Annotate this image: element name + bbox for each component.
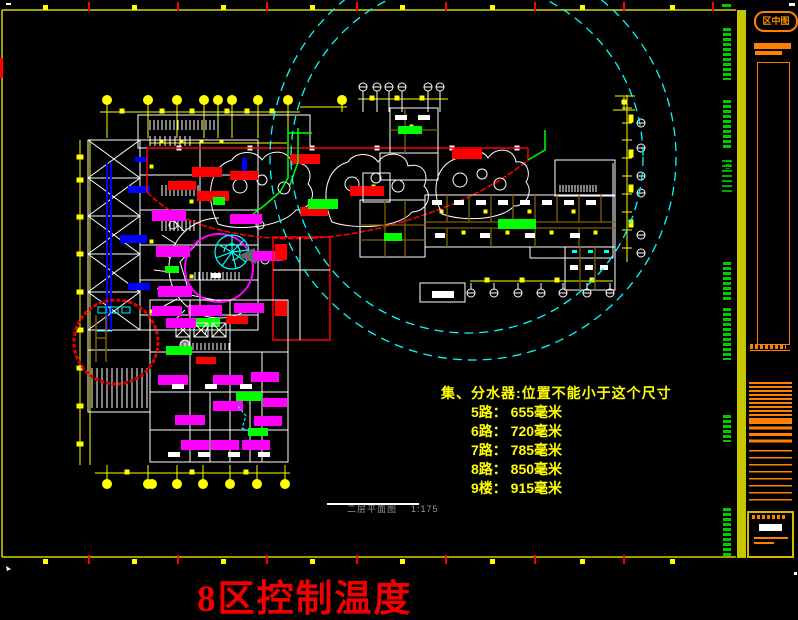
annotation-title: 集、分水器:位置不能小于这个尺寸 <box>441 383 672 403</box>
annotation-row: 5路： 655毫米 <box>471 403 672 422</box>
title-block-rows <box>749 450 792 506</box>
plan-caption: 二层平面图1:175 <box>333 492 439 525</box>
company-logo: 区中图 <box>754 11 798 32</box>
annotation-row: 8路： 850毫米 <box>471 460 672 479</box>
panel-green-dash <box>722 4 731 7</box>
spiral-stair <box>215 235 249 269</box>
red-shaft <box>273 237 330 340</box>
plan-caption-scale: 1:175 <box>411 504 439 514</box>
green-bar-hall <box>213 197 225 205</box>
manifold-annotation: 集、分水器:位置不能小于这个尺寸 5路： 655毫米 6路： 720毫米 7路：… <box>441 383 672 498</box>
stamp-rule <box>754 537 788 539</box>
sheet-binding-band <box>737 10 746 558</box>
micro-text-block <box>723 262 731 300</box>
title-block-micro-text <box>750 344 786 349</box>
cursor-icon <box>6 566 11 571</box>
plan-caption-underline <box>327 503 419 505</box>
revision-circle-red <box>74 300 158 384</box>
title-block-bar <box>755 51 782 55</box>
top-strip-block <box>138 115 519 150</box>
green-bar-hall-2 <box>308 199 338 209</box>
title-block-stamp <box>747 511 794 558</box>
panel-white-dot <box>794 572 797 575</box>
micro-text-block <box>723 28 731 80</box>
micro-text-tel: TEL <box>722 160 732 194</box>
building-left-block <box>88 140 258 412</box>
stamp-micro-text <box>752 515 786 519</box>
floor-plan-canvas[interactable] <box>0 0 798 620</box>
title-block-bars <box>749 420 792 446</box>
annotation-row: 7路： 785毫米 <box>471 441 672 460</box>
annotation-row: 9楼： 915毫米 <box>471 479 672 498</box>
stamp-rule <box>754 542 774 544</box>
zone-control-label: 8区控制温度 <box>197 568 413 620</box>
title-block-rule <box>750 350 790 351</box>
micro-text-block <box>723 308 731 360</box>
micro-text-block <box>723 415 731 442</box>
annotation-row: 6路： 720毫米 <box>471 422 672 441</box>
plan-caption-name: 二层平面图 <box>347 504 397 514</box>
right-wing <box>360 108 615 302</box>
panel-white-dash <box>789 3 795 6</box>
title-block-bar <box>754 43 791 49</box>
micro-text-block <box>723 100 731 150</box>
stamp-white-field <box>759 524 782 531</box>
title-block-frame <box>757 62 790 345</box>
cad-viewport[interactable]: 集、分水器:位置不能小于这个尺寸 5路： 655毫米 6路： 720毫米 7路：… <box>0 0 798 620</box>
micro-text-block <box>723 508 731 556</box>
